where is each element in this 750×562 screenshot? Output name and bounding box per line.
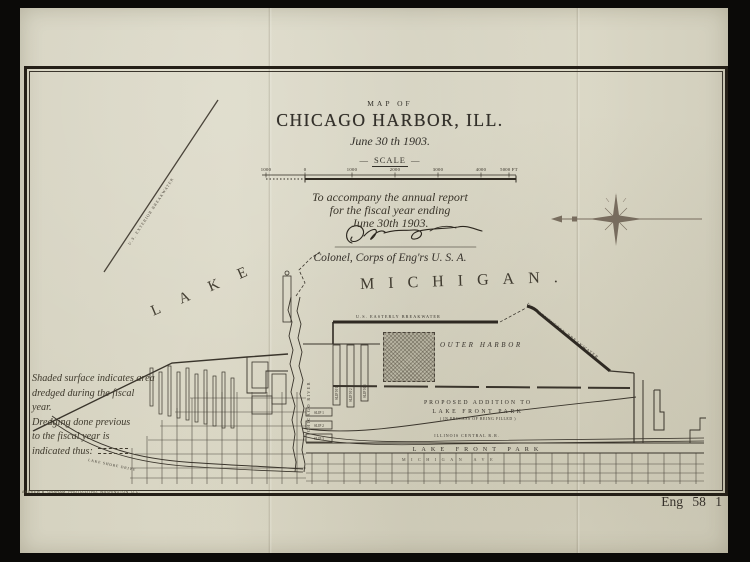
scale-tick-label: 3000: [433, 167, 444, 172]
outer-harbor-label: OUTER HARBOR: [440, 341, 523, 349]
dashed-line-symbol: [98, 448, 128, 454]
dredging-note-line: indicated thus:: [32, 446, 93, 457]
scale-dash-left: —: [360, 155, 370, 165]
slip-label: SLIP 2: [314, 424, 324, 428]
photo-of-map: MAP OF CHICAGO HARBOR, ILL. June 30 th 1…: [0, 0, 750, 562]
slip-label: SLIP 1: [314, 411, 324, 415]
dredging-note-line: Dredging done previous: [32, 416, 210, 431]
dredging-note-line: year.: [32, 401, 210, 416]
lake-front-park-band: LAKE FRONT PARK: [306, 443, 704, 453]
exterior-breakwater: U.S. EXTERIOR BREAKWATER: [104, 100, 218, 272]
scale-heading: —SCALE—: [240, 155, 540, 165]
scale-dash-right: —: [411, 155, 421, 165]
slip-label: SLIP Nº3: [363, 384, 367, 398]
proposed-addition-label-3: ( IN PROCESS OF BEING FILLED ): [440, 417, 516, 421]
dredging-note-line: Shaded surface indicates area: [32, 372, 210, 387]
proposed-addition-label-1: PROPOSED ADDITION TO: [424, 400, 532, 406]
proposed-addition-label-2: LAKE FRONT PARK: [432, 409, 523, 415]
map-title: CHICAGO HARBOR, ILL.: [240, 110, 540, 131]
michigan-ave-label: MICHIGAN AVE: [402, 457, 498, 462]
lake-front-park-label: LAKE FRONT PARK: [413, 446, 544, 453]
scale-tick-label: 4000: [476, 167, 487, 172]
scale-tick-label: 2000: [390, 167, 401, 172]
easterly-breakwater: U.S. EASTERLY BREAKWATER: [333, 308, 526, 344]
dredging-note-last-line: indicated thus:: [32, 445, 210, 460]
scale-label: SCALE: [372, 155, 408, 167]
street-grid-south: MICHIGAN AVE: [306, 453, 704, 484]
scale-tick-label: 1000: [347, 167, 358, 172]
southerly-breakwater: U.S. SOUTHERLY BREAKWATER: [526, 302, 610, 371]
southerly-breakwater-label: U.S. SOUTHERLY BREAKWATER: [526, 302, 600, 360]
lake-shore-drive-label: LAKE SHORE DRIVE: [88, 458, 137, 472]
scale-tick-label: 0: [304, 167, 307, 172]
slips: SLIP Nº1 SLIP Nº2 SLIP Nº3 SLIP 1 SLIP 2…: [303, 344, 380, 442]
chicago-river: CHICAGO RIVER: [288, 297, 311, 472]
plate-number: Eng 58 1: [620, 494, 722, 510]
outer-harbor-south-pier: [333, 386, 630, 388]
easterly-breakwater-label: U.S. EASTERLY BREAKWATER: [356, 314, 441, 319]
map-sheet: MAP OF CHICAGO HARBOR, ILL. June 30 th 1…: [20, 8, 728, 553]
illinois-central-label: ILLINOIS CENTRAL R.R.: [434, 433, 500, 438]
right-harbor-structures: [610, 371, 706, 443]
dredging-note-line: dredged during the fiscal: [32, 387, 210, 402]
dock-blocks: [252, 362, 286, 414]
exterior-breakwater-label: U.S. EXTERIOR BREAKWATER: [127, 177, 175, 246]
dredging-note: Shaded surface indicates area dredged du…: [32, 372, 210, 459]
map-date: June 30 th 1903.: [240, 134, 540, 149]
lithographer-imprint: ANDREW B. GRAHAM, PHOTO-LITHO. WASHINGTO…: [22, 490, 140, 494]
slip-label: SLIP Nº1: [335, 386, 339, 400]
chicago-river-label: CHICAGO RIVER: [306, 381, 311, 432]
slip-label: SLIP Nº2: [349, 388, 353, 402]
scale-bar: 1000 0 1000 2000 3000 4000 5000 FT: [261, 167, 518, 183]
statement-line-3: June 30th 1903.: [240, 216, 540, 231]
dredging-note-line: to the fiscal year is: [32, 430, 210, 445]
map-of-label: MAP OF: [240, 99, 540, 108]
compass-rose-icon: [551, 193, 702, 246]
scale-tick-label: 5000 FT: [500, 167, 518, 172]
scale-tick-label: 1000: [261, 167, 272, 172]
